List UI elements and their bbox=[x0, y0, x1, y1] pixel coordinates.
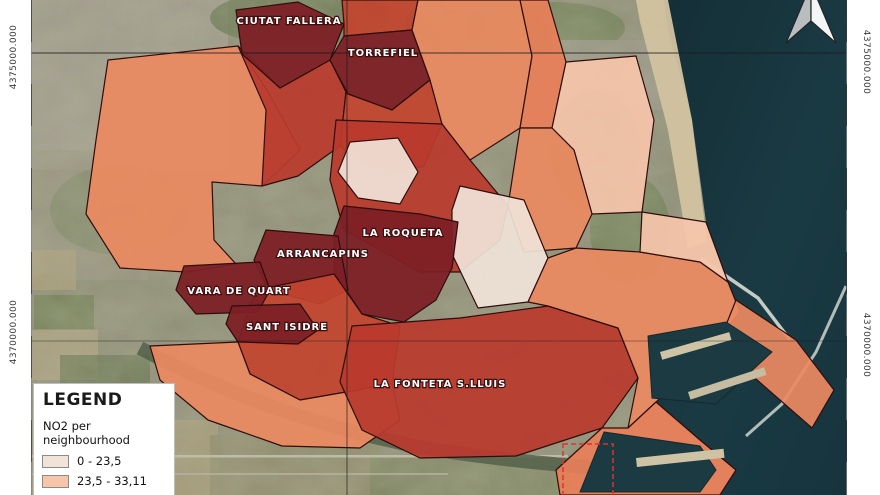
label-vara-de-quart: VARA DE QUART bbox=[187, 286, 290, 297]
legend-subtitle: NO2 per neighbourhood bbox=[43, 419, 166, 447]
legend: LEGEND NO2 per neighbourhood 0 - 23,5 23… bbox=[33, 383, 175, 495]
coord-left-bottom: 4370000.000 bbox=[9, 300, 19, 365]
coord-right-bottom: 4370000.000 bbox=[861, 313, 871, 378]
legend-title: LEGEND bbox=[43, 390, 166, 410]
legend-swatch-class1 bbox=[42, 455, 69, 468]
map-frame-right bbox=[847, 0, 851, 495]
legend-class-row: 0 - 23,5 bbox=[42, 454, 166, 468]
map-figure: CIUTAT FALLERA TORREFIEL LA ROQUETA ARRA… bbox=[0, 0, 880, 495]
legend-swatch-class2 bbox=[42, 475, 69, 488]
coord-right-top: 4375000.000 bbox=[861, 30, 871, 95]
label-ciutat-fallera: CIUTAT FALLERA bbox=[237, 16, 342, 27]
label-la-roqueta: LA ROQUETA bbox=[362, 228, 443, 239]
label-la-fonteta: LA FONTETA S.LLUIS bbox=[374, 379, 507, 390]
label-torrefiel: TORREFIEL bbox=[348, 48, 418, 59]
legend-class-row: 23,5 - 33,11 bbox=[42, 474, 166, 488]
legend-label-class1: 0 - 23,5 bbox=[77, 454, 121, 468]
label-arrancapins: ARRANCAPINS bbox=[277, 249, 369, 260]
label-sant-isidre: SANT ISIDRE bbox=[246, 322, 328, 333]
legend-label-class2: 23,5 - 33,11 bbox=[77, 474, 147, 488]
coord-left-top: 4375000.000 bbox=[9, 25, 19, 90]
map-frame-left bbox=[28, 0, 32, 495]
